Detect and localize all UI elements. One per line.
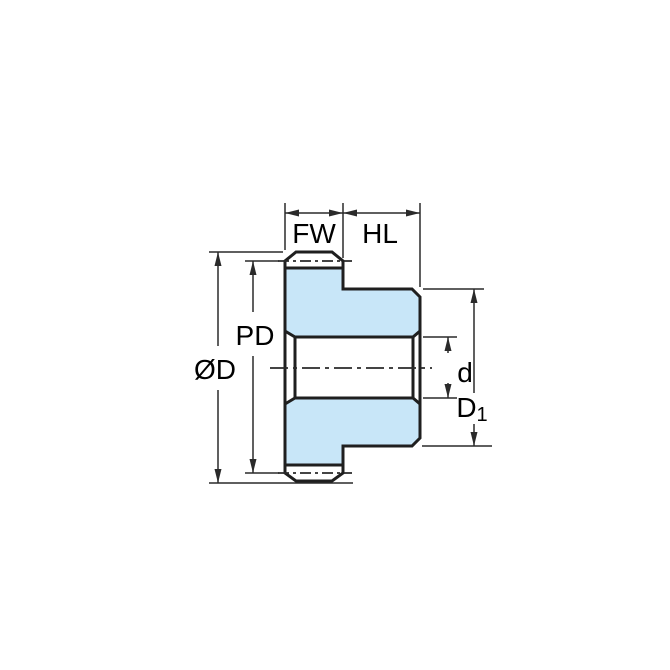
gear-dimension-drawing: FW HL PD ØD d D1 xyxy=(0,0,670,670)
d-arrow-up xyxy=(445,337,452,351)
od-arrow-down xyxy=(215,469,222,483)
hl-arrow-left xyxy=(343,210,357,217)
fw-arrow-right xyxy=(329,210,343,217)
hl-label: HL xyxy=(362,218,398,249)
d1-label-main: D xyxy=(456,392,476,423)
od-label: ØD xyxy=(194,354,236,385)
gear-body-upper-section xyxy=(285,268,420,337)
d1-label-subscript: 1 xyxy=(477,404,488,426)
d-label: d xyxy=(457,357,473,388)
gear-tooth-top xyxy=(285,252,343,268)
d1-arrow-down xyxy=(471,432,478,446)
pd-arrow-down xyxy=(250,459,257,473)
fw-label: FW xyxy=(292,218,336,249)
pd-arrow-up xyxy=(250,261,257,275)
d-arrow-down xyxy=(445,384,452,398)
gear-cross-section xyxy=(285,252,420,481)
fw-arrow-left xyxy=(285,210,299,217)
gear-body-lower-section xyxy=(285,398,420,465)
d1-label: D1 xyxy=(456,392,487,426)
hl-arrow-right xyxy=(406,210,420,217)
od-arrow-up xyxy=(215,252,222,266)
d1-arrow-up xyxy=(471,289,478,303)
pd-label: PD xyxy=(236,320,275,351)
